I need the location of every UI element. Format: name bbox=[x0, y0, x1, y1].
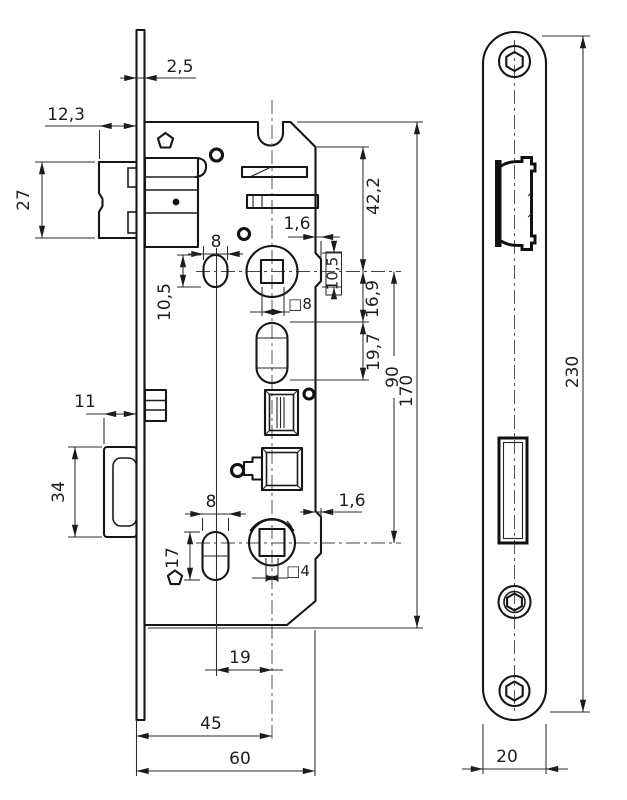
stop-block bbox=[244, 448, 302, 490]
pin-hole bbox=[304, 389, 314, 399]
rivet-dot bbox=[173, 199, 180, 206]
dim-latch-slot-height: 10,5 bbox=[155, 283, 175, 321]
dim-bolt-protrusion: 11 bbox=[74, 392, 96, 412]
spring-slot-lower bbox=[247, 195, 318, 208]
side-view: 230 20 bbox=[462, 32, 590, 774]
dim-key-slot-width: 8 bbox=[206, 492, 217, 512]
latch-bolt bbox=[99, 162, 137, 238]
dim-handle-to-slot: 16,9 bbox=[363, 280, 383, 318]
front-view: 2,5 12,3 27 8 10,5 bbox=[14, 30, 423, 776]
pin-hole bbox=[232, 465, 244, 477]
side-dimensions: 230 20 bbox=[462, 36, 590, 774]
deadbolt-guide bbox=[145, 390, 166, 421]
faceplate-edge bbox=[137, 30, 145, 720]
deadbolt-cutout bbox=[499, 438, 527, 543]
dim-key-slot-height: 17 bbox=[163, 547, 183, 569]
fixing-slot-upper bbox=[204, 255, 228, 287]
dim-latch-protrusion: 12,3 bbox=[47, 105, 85, 125]
pin-hole bbox=[239, 229, 250, 240]
pin-hole bbox=[211, 149, 223, 161]
dim-bolt-height: 34 bbox=[49, 481, 69, 503]
front-dimensions: 2,5 12,3 27 8 10,5 bbox=[14, 57, 423, 776]
spring-slot-upper bbox=[242, 167, 307, 177]
internal-parts bbox=[145, 133, 318, 584]
screw-hole-hex bbox=[168, 571, 182, 585]
dim-case-height: 170 bbox=[397, 375, 417, 407]
screw-hole-hex bbox=[158, 133, 173, 148]
dim-slot-offset: 19 bbox=[229, 648, 251, 668]
dim-case-depth: 60 bbox=[229, 749, 251, 769]
lock-technical-drawing: 2,5 12,3 27 8 10,5 bbox=[0, 0, 627, 800]
dim-plate-thickness: 2,5 bbox=[166, 57, 193, 77]
latch-tail bbox=[145, 158, 206, 247]
dim-shoulder-to-handle: 42,2 bbox=[364, 177, 384, 215]
drawing-page: 2,5 12,3 27 8 10,5 bbox=[0, 0, 627, 800]
dim-latch-height: 27 bbox=[14, 189, 34, 211]
dim-slot-length: 19,7 bbox=[364, 333, 384, 371]
deadbolt bbox=[104, 447, 137, 537]
dim-follower-height-ref: 10,5 bbox=[324, 257, 342, 290]
dim-backset: 45 bbox=[200, 714, 222, 734]
fixing-slot-lower bbox=[203, 532, 229, 580]
dim-handle-square: □8 bbox=[288, 295, 312, 313]
dim-edge-step-bottom: 1,6 bbox=[338, 491, 365, 511]
dim-key-square: □4 bbox=[286, 562, 310, 580]
dim-edge-step-top: 1,6 bbox=[283, 214, 310, 234]
dim-plate-length: 230 bbox=[563, 356, 583, 388]
dim-latch-slot-width: 8 bbox=[211, 232, 222, 252]
latch-cutout bbox=[495, 158, 535, 250]
spring-boss bbox=[265, 390, 298, 435]
dim-plate-width: 20 bbox=[496, 747, 518, 767]
